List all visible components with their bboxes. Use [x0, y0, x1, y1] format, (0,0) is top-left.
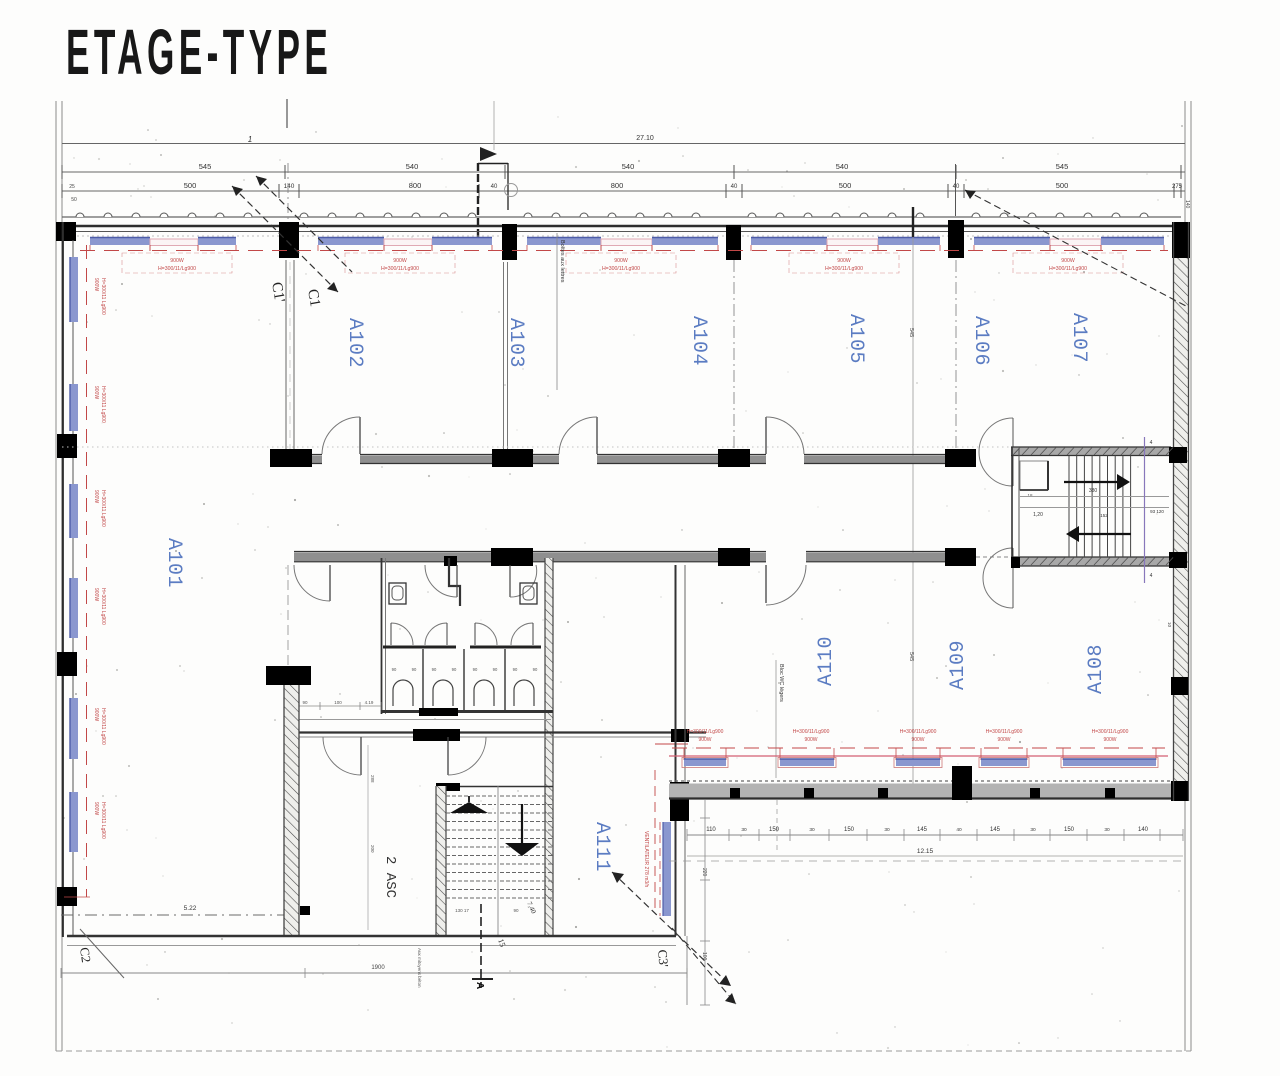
svg-text:900W: 900W — [837, 258, 851, 264]
svg-text:H=300/11 Lg900: H=300/11 Lg900 — [100, 708, 106, 745]
svg-text:40: 40 — [731, 184, 738, 190]
svg-text:500: 500 — [184, 181, 197, 190]
svg-text:900W: 900W — [1061, 258, 1075, 264]
svg-text:C1: C1 — [304, 288, 323, 308]
svg-text:ETAGE-TYPE: ETAGE-TYPE — [66, 16, 332, 88]
svg-text:A: A — [474, 982, 485, 989]
svg-text:150: 150 — [1064, 827, 1075, 833]
svg-text:50: 50 — [71, 197, 77, 203]
svg-text:25: 25 — [69, 184, 75, 190]
svg-text:H=300/11/Lg900: H=300/11/Lg900 — [1049, 266, 1087, 272]
svg-text:4.19: 4.19 — [365, 700, 374, 705]
svg-text:900W: 900W — [93, 708, 99, 721]
svg-text:900W: 900W — [1103, 737, 1116, 743]
svg-text:100: 100 — [334, 700, 342, 705]
svg-text:40: 40 — [491, 184, 498, 190]
svg-text:A103: A103 — [504, 318, 527, 368]
svg-text:H=300/11/Lg900: H=300/11/Lg900 — [381, 266, 419, 272]
svg-text:145: 145 — [990, 827, 1001, 833]
svg-text:A109: A109 — [947, 640, 970, 690]
svg-text:40: 40 — [953, 184, 960, 190]
svg-text:A104: A104 — [687, 316, 710, 366]
svg-text:545: 545 — [1056, 162, 1069, 171]
svg-text:90: 90 — [513, 667, 518, 672]
svg-text:800: 800 — [409, 181, 422, 190]
svg-text:H=300/11/Lg900: H=300/11/Lg900 — [158, 266, 196, 272]
svg-text:90: 90 — [513, 908, 519, 913]
svg-text:200: 200 — [370, 845, 375, 853]
svg-text:2 ASC: 2 ASC — [382, 856, 398, 898]
svg-text:1900: 1900 — [371, 965, 385, 971]
svg-text:93 120: 93 120 — [1150, 509, 1164, 514]
svg-text:1,20: 1,20 — [1033, 512, 1043, 518]
svg-text:800: 800 — [611, 181, 624, 190]
svg-text:380: 380 — [1089, 488, 1098, 494]
svg-text:90: 90 — [533, 667, 538, 672]
svg-text:H=300/11/Lg900: H=300/11/Lg900 — [900, 729, 937, 735]
svg-text:H=300/11/Lg900: H=300/11/Lg900 — [825, 266, 863, 272]
svg-text:540: 540 — [622, 162, 635, 171]
svg-text:900W: 900W — [997, 737, 1010, 743]
svg-text:900W: 900W — [911, 737, 924, 743]
svg-text:A105: A105 — [844, 314, 867, 364]
svg-text:30: 30 — [1030, 827, 1036, 833]
svg-text:110: 110 — [706, 827, 716, 833]
svg-text:540: 540 — [836, 162, 849, 171]
svg-text:140: 140 — [1184, 200, 1190, 209]
svg-text:900W: 900W — [393, 258, 407, 264]
svg-text:H=300/11/Lg900: H=300/11/Lg900 — [687, 729, 724, 735]
svg-text:545: 545 — [908, 652, 914, 661]
svg-text:18: 18 — [1027, 493, 1033, 498]
svg-text:90: 90 — [392, 667, 397, 672]
svg-text:H=300/11/Lg900: H=300/11/Lg900 — [602, 266, 640, 272]
svg-text:VENTILATEUR 278 m3/h: VENTILATEUR 278 m3/h — [643, 831, 649, 888]
svg-text:H=300/11 Lg900: H=300/11 Lg900 — [100, 386, 106, 423]
svg-text:90: 90 — [452, 667, 457, 672]
svg-text:H=300/11 Lg900: H=300/11 Lg900 — [100, 490, 106, 527]
svg-text:900W: 900W — [93, 386, 99, 399]
svg-text:C2: C2 — [77, 946, 94, 963]
svg-text:288: 288 — [370, 775, 375, 783]
svg-text:40: 40 — [956, 827, 962, 833]
svg-text:5.22: 5.22 — [184, 905, 197, 912]
svg-text:900W: 900W — [93, 802, 99, 815]
svg-text:900W: 900W — [804, 737, 817, 743]
svg-text:A110: A110 — [815, 636, 838, 686]
svg-text:30: 30 — [1104, 827, 1110, 833]
svg-text:1: 1 — [248, 135, 252, 144]
svg-text:A108: A108 — [1085, 644, 1108, 694]
svg-text:A107: A107 — [1067, 313, 1090, 363]
svg-text:545: 545 — [199, 162, 212, 171]
svg-text:H=300/11 Lg900: H=300/11 Lg900 — [100, 588, 106, 625]
svg-text:900W: 900W — [170, 258, 184, 264]
svg-text:900W: 900W — [93, 588, 99, 601]
svg-text:12.15: 12.15 — [917, 848, 934, 855]
svg-text:4: 4 — [1150, 573, 1153, 579]
svg-text:220: 220 — [701, 868, 707, 877]
svg-text:A111: A111 — [590, 822, 613, 872]
svg-text:H=300/11/Lg900: H=300/11/Lg900 — [1092, 729, 1129, 735]
svg-text:140: 140 — [1138, 827, 1149, 833]
svg-text:90: 90 — [432, 667, 437, 672]
svg-text:100: 100 — [701, 952, 707, 961]
svg-text:150: 150 — [844, 827, 855, 833]
svg-text:H=300/11 Lg900: H=300/11 Lg900 — [100, 802, 106, 839]
svg-text:900W: 900W — [614, 258, 628, 264]
svg-text:90: 90 — [473, 667, 478, 672]
svg-text:90: 90 — [302, 700, 308, 705]
svg-text:500: 500 — [839, 181, 852, 190]
svg-text:A101: A101 — [162, 538, 185, 588]
svg-text:30: 30 — [884, 827, 890, 833]
svg-text:275: 275 — [1172, 184, 1183, 190]
svg-text:C3': C3' — [655, 949, 671, 968]
svg-text:A102: A102 — [343, 318, 366, 368]
svg-text:500: 500 — [1056, 181, 1069, 190]
svg-text:900W: 900W — [698, 737, 711, 743]
svg-text:150: 150 — [769, 827, 780, 833]
svg-text:540: 540 — [406, 162, 419, 171]
svg-text:900W: 900W — [93, 490, 99, 503]
svg-text:900W: 900W — [93, 278, 99, 291]
svg-text:27.10: 27.10 — [636, 135, 654, 142]
svg-text:30: 30 — [741, 827, 747, 833]
svg-text:Boîtes aux lettres: Boîtes aux lettres — [559, 240, 565, 283]
svg-text:90: 90 — [412, 667, 417, 672]
svg-text:30: 30 — [809, 827, 815, 833]
svg-text:Aux mitoyens béton: Aux mitoyens béton — [417, 948, 422, 988]
svg-text:A106: A106 — [969, 316, 992, 366]
svg-text:145: 145 — [917, 827, 928, 833]
svg-text:Bloc WC légers: Bloc WC légers — [778, 664, 784, 702]
svg-text:152: 152 — [1100, 513, 1108, 518]
svg-text:4: 4 — [1150, 440, 1153, 446]
svg-text:90: 90 — [493, 667, 498, 672]
svg-text:H=300/11/Lg900: H=300/11/Lg900 — [793, 729, 830, 735]
svg-text:140: 140 — [284, 183, 295, 190]
svg-text:545: 545 — [908, 328, 914, 337]
svg-text:H=300/11 Lg900: H=300/11 Lg900 — [100, 278, 106, 315]
svg-text:10: 10 — [1167, 622, 1172, 628]
svg-text:130 17: 130 17 — [455, 908, 469, 913]
svg-text:H=300/11/Lg900: H=300/11/Lg900 — [986, 729, 1023, 735]
